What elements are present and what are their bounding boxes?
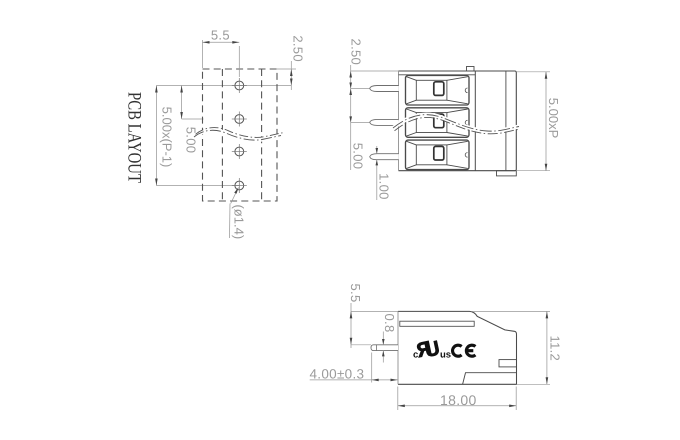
svg-text:1.00: 1.00 [377, 173, 392, 200]
svg-text:5.00: 5.00 [184, 127, 199, 154]
svg-text:5.00x(P-1): 5.00x(P-1) [160, 107, 175, 168]
svg-text:4.00±0.3: 4.00±0.3 [309, 367, 364, 382]
svg-text:PCB LAYOUT: PCB LAYOUT [124, 92, 145, 183]
svg-text:5.5: 5.5 [211, 28, 230, 43]
svg-text:2.50: 2.50 [349, 39, 364, 66]
svg-text:2.50: 2.50 [291, 35, 306, 62]
svg-text:5.00: 5.00 [351, 143, 366, 170]
svg-text:us: us [440, 350, 451, 361]
svg-text:11.2: 11.2 [547, 336, 562, 362]
svg-text:(ø1.4): (ø1.4) [232, 204, 247, 239]
svg-text:0.8: 0.8 [382, 314, 397, 333]
svg-text:5.00xP: 5.00xP [546, 98, 561, 138]
svg-text:5.5: 5.5 [348, 284, 363, 303]
svg-text:18.00: 18.00 [440, 392, 477, 408]
